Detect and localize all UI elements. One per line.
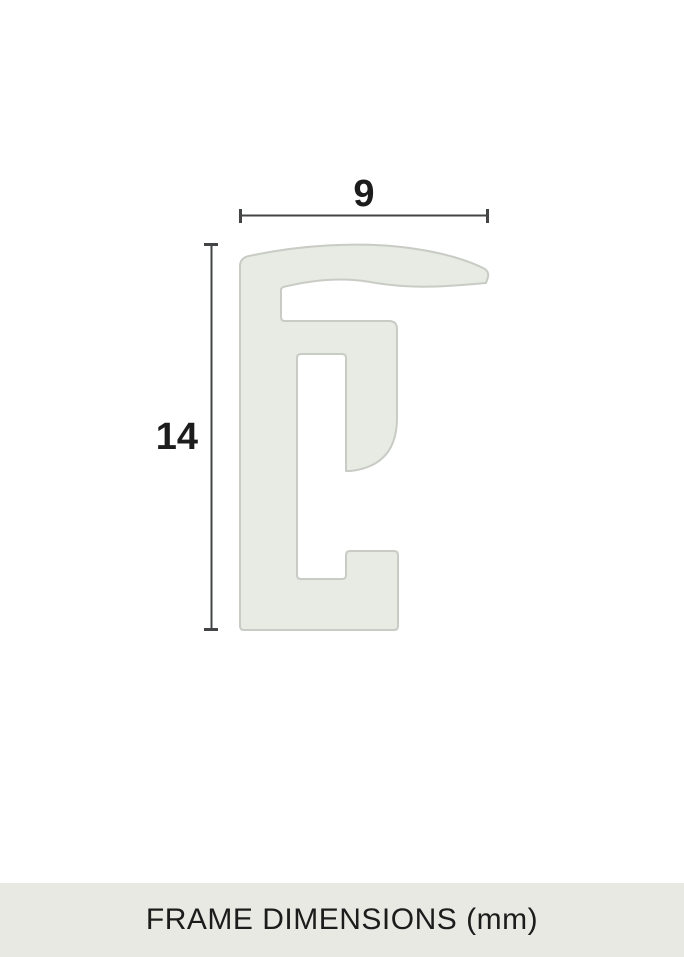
- width-dimension-label: 9: [353, 173, 374, 215]
- profile-diagram: 9 14: [0, 0, 684, 883]
- caption-bar: FRAME DIMENSIONS (mm): [0, 883, 684, 957]
- height-dimension-label: 14: [156, 416, 198, 458]
- frame-profile-shape: [240, 245, 488, 630]
- height-dimension-line: [204, 244, 218, 630]
- frame-dimensions-figure: 9 14 FRAME DIMENSIONS (mm): [0, 0, 684, 957]
- caption-text: FRAME DIMENSIONS (mm): [146, 903, 538, 937]
